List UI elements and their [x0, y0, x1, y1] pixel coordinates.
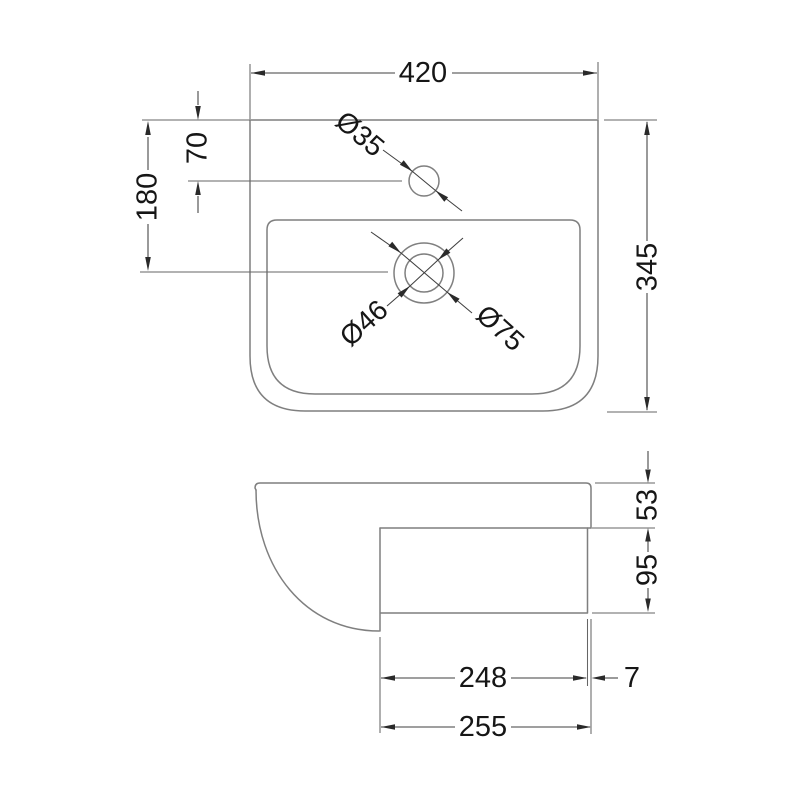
- dim-label-53: 53: [632, 489, 664, 521]
- arrowhead: [381, 675, 395, 681]
- arrowhead: [381, 724, 395, 730]
- dim-label-d75: Ø75: [470, 299, 530, 357]
- arrowhead: [573, 675, 587, 681]
- arrowhead: [436, 191, 449, 202]
- arrowhead: [145, 257, 151, 271]
- arrowhead: [592, 675, 606, 681]
- arrowhead: [251, 70, 265, 76]
- dim-label-95: 95: [632, 554, 664, 586]
- arrowhead: [388, 242, 401, 253]
- top-view: 420 345 180 70: [132, 57, 664, 412]
- arrowhead: [195, 181, 201, 195]
- dim-body-height: 95: [592, 528, 664, 613]
- rim-profile-outline: [255, 483, 591, 528]
- side-view: 53 95 248 7: [255, 451, 664, 743]
- drawing-canvas: 420 345 180 70: [0, 0, 800, 800]
- arrowhead: [645, 599, 651, 613]
- arrowhead: [583, 70, 597, 76]
- dim-label-70: 70: [182, 132, 214, 164]
- arrowhead: [645, 528, 651, 542]
- dim-waste-outer-diameter: Ø75: [371, 232, 530, 357]
- dim-tap-hole-diameter: Ø35: [330, 105, 462, 211]
- dim-overall-depth: 345: [604, 120, 664, 412]
- dim-label-248: 248: [459, 662, 507, 694]
- arrowhead: [400, 160, 413, 171]
- arrowhead: [577, 724, 591, 730]
- arrowhead: [145, 121, 151, 135]
- dim-overall-width: 420: [250, 57, 598, 119]
- dim-rim-overhang: 7: [591, 619, 640, 734]
- arrowhead: [644, 121, 650, 135]
- bowl-underside-curve: [256, 490, 379, 631]
- dim-label-d35: Ø35: [330, 105, 390, 163]
- basin-bowl-outline: [267, 220, 580, 394]
- arrowhead: [645, 470, 651, 484]
- drawing-page: 420 345 180 70: [0, 0, 800, 800]
- dim-label-255: 255: [459, 711, 507, 743]
- dim-label-420: 420: [399, 57, 447, 89]
- arrowhead: [644, 397, 650, 411]
- dim-label-345: 345: [632, 243, 664, 291]
- basin-outline: [250, 120, 598, 411]
- dim-label-7: 7: [624, 662, 640, 694]
- arrowhead: [195, 106, 201, 120]
- dim-label-180: 180: [132, 173, 164, 221]
- dim-overall-front-depth: 255: [381, 711, 591, 743]
- dim-label-d46: Ø46: [334, 294, 394, 352]
- body-profile-outline: [380, 528, 588, 631]
- dim-rim-height: 53: [592, 451, 664, 528]
